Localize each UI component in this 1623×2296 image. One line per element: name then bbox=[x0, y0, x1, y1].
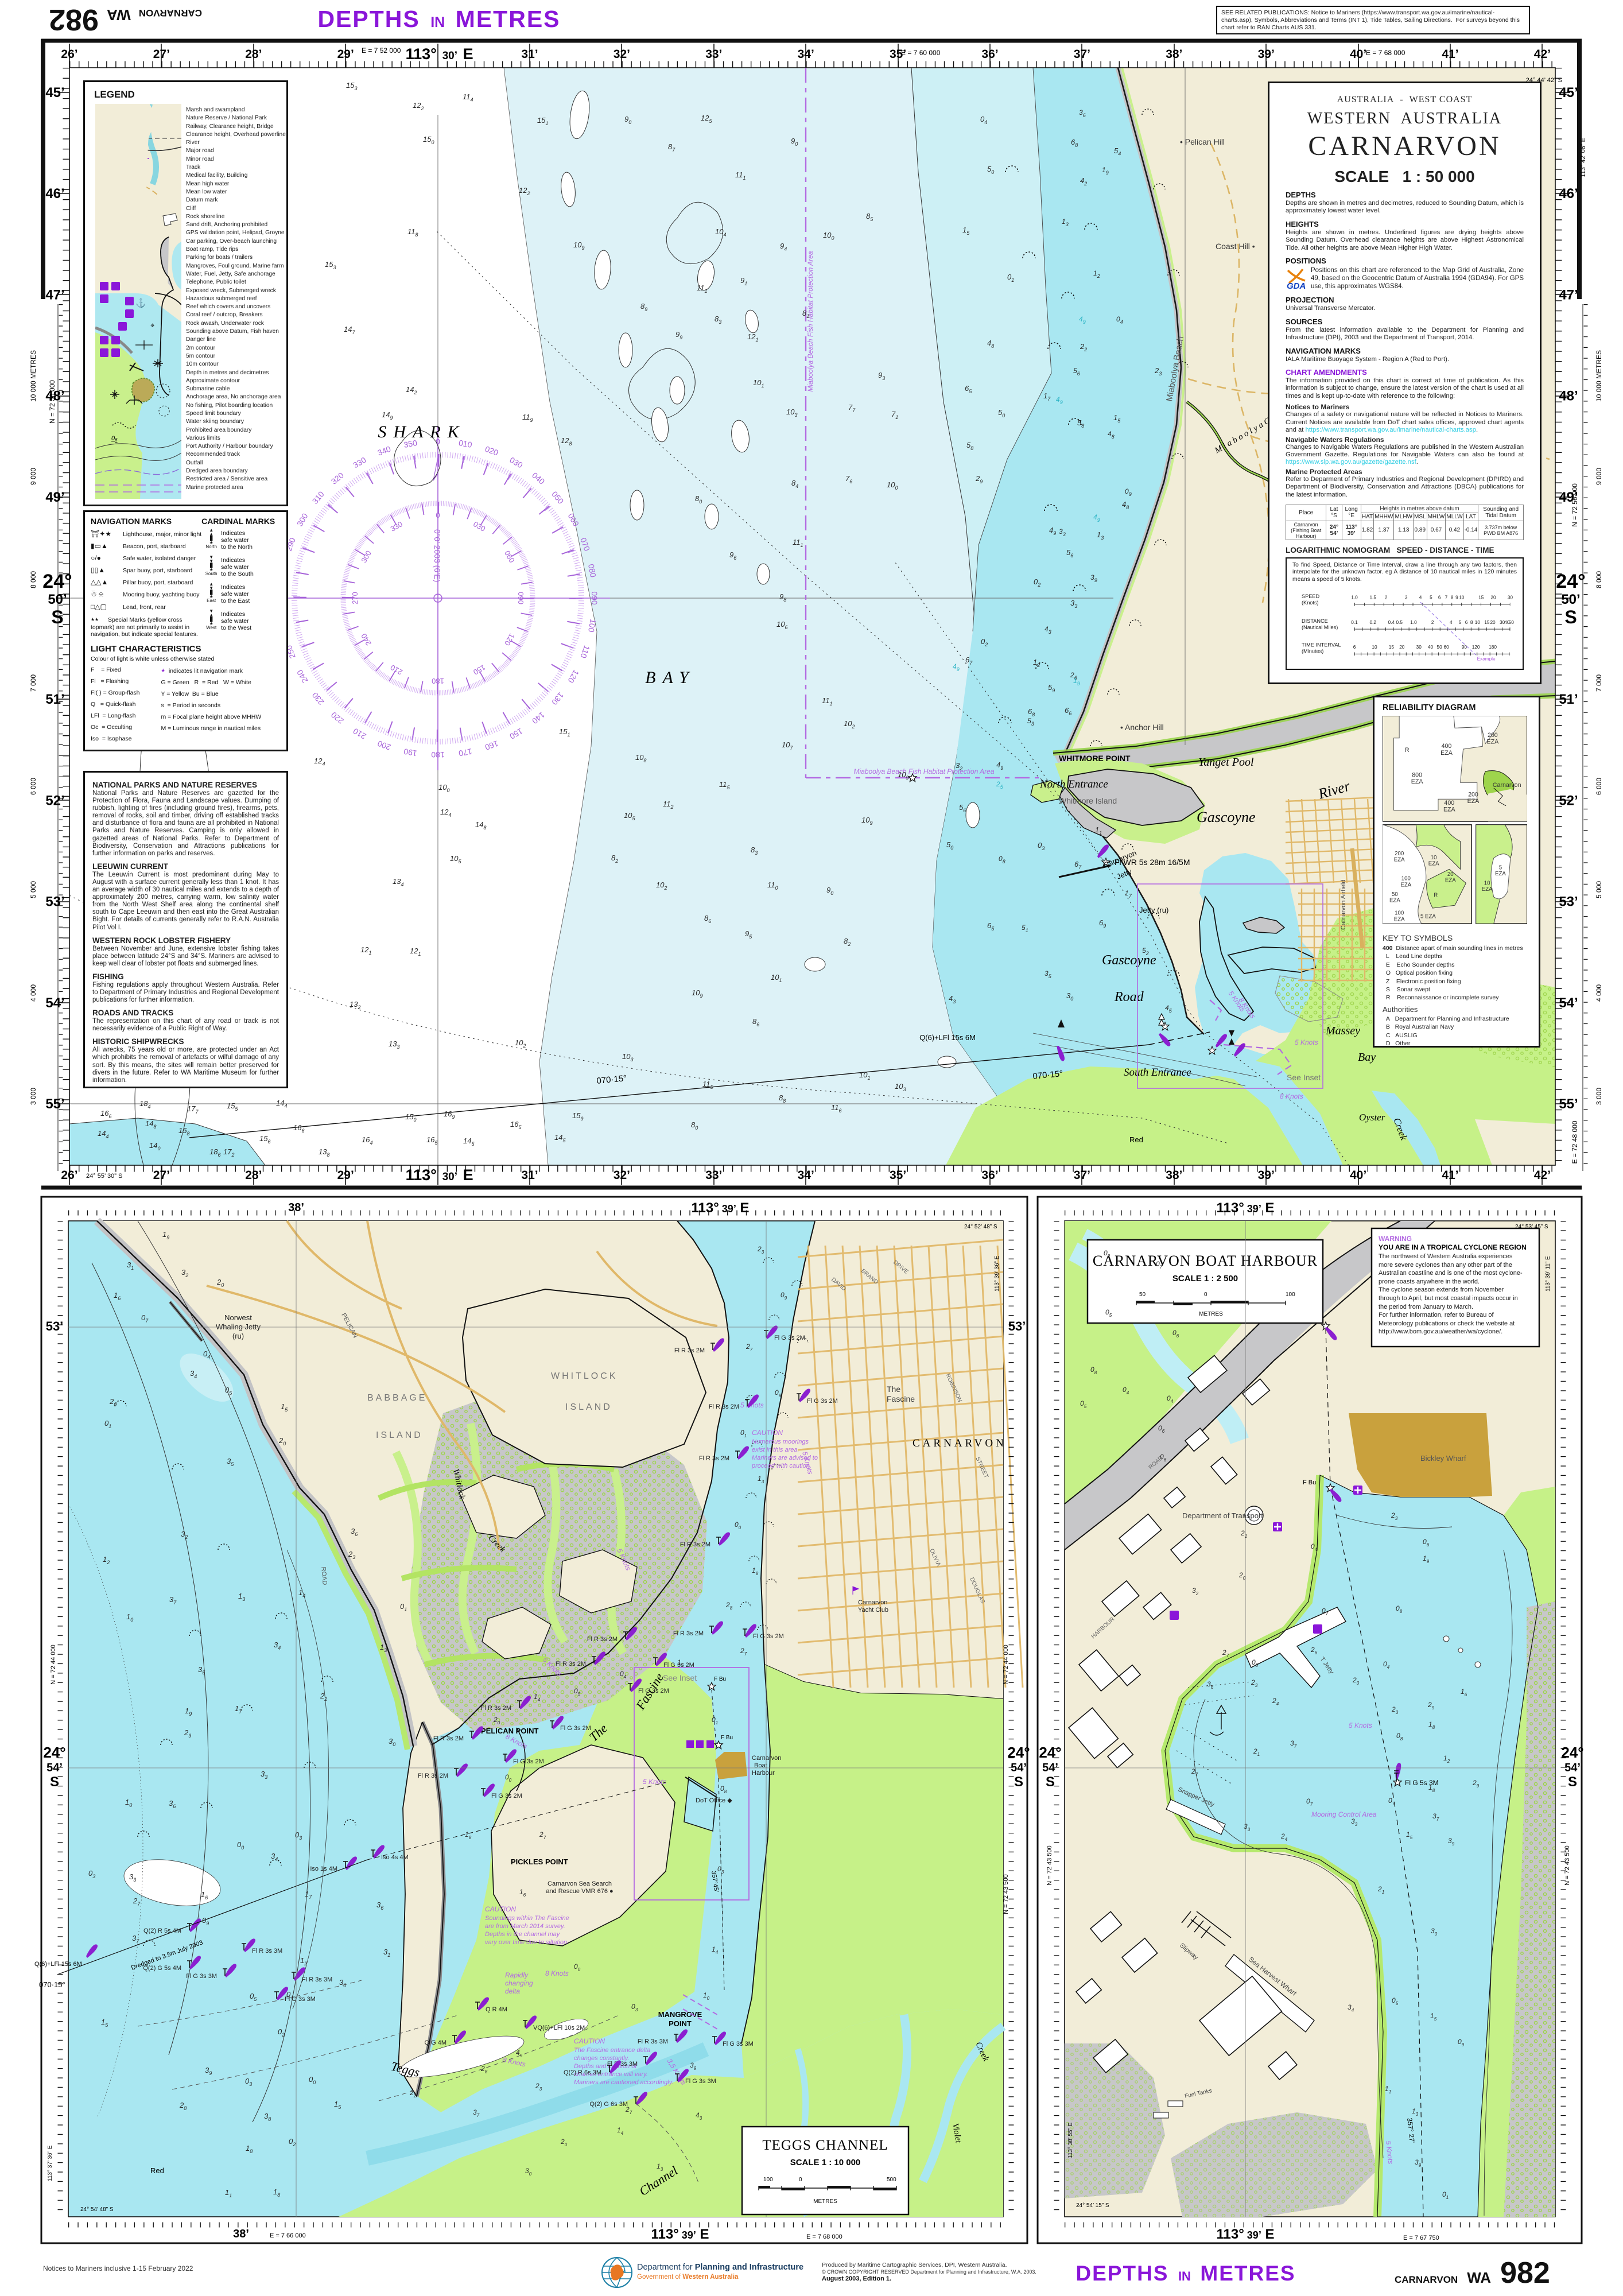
svg-text:2: 2 bbox=[1431, 620, 1434, 625]
svg-text:Carnarvon Sea Search: Carnarvon Sea Search bbox=[548, 1880, 612, 1887]
svg-text:42’: 42’ bbox=[1534, 1169, 1551, 1182]
svg-text:Massey: Massey bbox=[1325, 1025, 1360, 1037]
svg-text:S: S bbox=[51, 607, 63, 627]
svg-text:S: S bbox=[50, 1774, 59, 1790]
svg-text:Fl R 3s 3M: Fl R 3s 3M bbox=[302, 1976, 332, 1983]
svg-text:proceed with caution.: proceed with caution. bbox=[751, 1463, 811, 1469]
svg-text:20: 20 bbox=[1490, 595, 1496, 600]
svg-text:Fl G 3s 3M: Fl G 3s 3M bbox=[685, 2078, 716, 2085]
svg-text:Fl R 3s 2M: Fl R 3s 2M bbox=[699, 1455, 729, 1462]
svg-text:0°0’ 2003 (6’E): 0°0’ 2003 (6’E) bbox=[433, 529, 442, 582]
svg-text:EZA: EZA bbox=[1428, 861, 1439, 867]
svg-text:E = 7 68 000: E = 7 68 000 bbox=[1366, 49, 1405, 57]
svg-text:Whitmore Island: Whitmore Island bbox=[1059, 796, 1117, 805]
svg-text:47’: 47’ bbox=[45, 287, 64, 302]
svg-text:E: E bbox=[463, 45, 473, 63]
svg-text:Gascoyne: Gascoyne bbox=[1197, 809, 1256, 825]
svg-text:10: 10 bbox=[1459, 595, 1465, 600]
svg-text:EZA: EZA bbox=[1445, 878, 1456, 884]
svg-text:Fl G 3s 2M: Fl G 3s 2M bbox=[491, 1793, 522, 1799]
svg-text:EZA: EZA bbox=[1440, 750, 1453, 757]
svg-text:800: 800 bbox=[1412, 772, 1422, 779]
svg-text:50: 50 bbox=[1509, 620, 1515, 625]
svg-text:5 Knots: 5 Knots bbox=[1349, 1721, 1372, 1729]
svg-text:3 000: 3 000 bbox=[1595, 1088, 1603, 1105]
svg-text:39’: 39’ bbox=[1258, 1169, 1275, 1182]
svg-text:PICKLES POINT: PICKLES POINT bbox=[511, 1857, 568, 1866]
svg-text:Norwest: Norwest bbox=[224, 1313, 252, 1322]
svg-text:200: 200 bbox=[1488, 732, 1498, 739]
svg-text:(ru): (ru) bbox=[232, 1332, 244, 1340]
svg-text:47’: 47’ bbox=[1559, 287, 1578, 302]
svg-text:2: 2 bbox=[1385, 595, 1388, 600]
svg-text:delta: delta bbox=[505, 1987, 520, 1995]
svg-text:50: 50 bbox=[1437, 645, 1443, 650]
svg-text:29’: 29’ bbox=[337, 1169, 354, 1182]
svg-text:SCALE 1 : 2 500: SCALE 1 : 2 500 bbox=[1172, 1274, 1238, 1283]
svg-text:4 000: 4 000 bbox=[1595, 984, 1603, 1002]
svg-text:EZA: EZA bbox=[1467, 798, 1480, 805]
svg-text:ISLAND: ISLAND bbox=[565, 1402, 612, 1412]
svg-text:42’: 42’ bbox=[1534, 48, 1551, 61]
svg-text:54’: 54’ bbox=[45, 995, 64, 1011]
svg-text:24°: 24° bbox=[1007, 1744, 1030, 1761]
svg-text:180: 180 bbox=[431, 750, 445, 759]
svg-text:Coast Hill •: Coast Hill • bbox=[1216, 242, 1255, 251]
svg-text:BAY: BAY bbox=[645, 668, 696, 687]
svg-text:Red: Red bbox=[150, 2166, 164, 2175]
svg-text:changing: changing bbox=[505, 1979, 533, 1987]
svg-text:45’: 45’ bbox=[45, 85, 64, 100]
svg-text:38’: 38’ bbox=[1166, 48, 1182, 61]
svg-text:100: 100 bbox=[763, 2177, 773, 2183]
svg-text:EZA: EZA bbox=[1487, 738, 1500, 745]
svg-text:33’: 33’ bbox=[705, 1169, 722, 1182]
svg-text:CARNARVON: CARNARVON bbox=[913, 1437, 1007, 1449]
svg-text:ISLAND: ISLAND bbox=[376, 1430, 423, 1440]
svg-text:113° 38’ 55” E: 113° 38’ 55” E bbox=[1067, 2122, 1074, 2158]
svg-text:Q G 4M: Q G 4M bbox=[424, 2039, 446, 2046]
svg-text:Whaling Jetty: Whaling Jetty bbox=[216, 1322, 261, 1331]
svg-text:113° 39’ 36” E: 113° 39’ 36” E bbox=[994, 1255, 1000, 1291]
svg-text:30’: 30’ bbox=[442, 50, 457, 62]
svg-text:• Anchor Hill: • Anchor Hill bbox=[1120, 723, 1164, 732]
svg-text:METRES: METRES bbox=[1199, 1311, 1223, 1317]
svg-text:113°: 113° bbox=[406, 45, 437, 63]
svg-text:• Pelican Hill: • Pelican Hill bbox=[1180, 137, 1225, 146]
svg-text:Miaboolya Beach Fish Habitat P: Miaboolya Beach Fish Habitat Protection … bbox=[853, 767, 994, 775]
svg-text:8 Knots: 8 Knots bbox=[1280, 1092, 1303, 1100]
svg-text:180: 180 bbox=[1489, 645, 1497, 650]
svg-text:200: 200 bbox=[1468, 791, 1478, 798]
svg-text:0.1: 0.1 bbox=[1351, 620, 1358, 625]
svg-text:5 000: 5 000 bbox=[29, 881, 37, 898]
svg-text:Q(2) R 6s 3M: Q(2) R 6s 3M bbox=[564, 2069, 601, 2076]
svg-text:41’: 41’ bbox=[1442, 1169, 1458, 1182]
svg-text:GDA: GDA bbox=[1287, 281, 1306, 289]
svg-text:(Knots): (Knots) bbox=[1302, 600, 1319, 606]
svg-text:Fl R 3s 2M: Fl R 3s 2M bbox=[433, 1735, 464, 1742]
svg-text:For further information, refer: For further information, refer to Bureau… bbox=[1379, 1312, 1494, 1318]
svg-text:Fl R 3s 2M: Fl R 3s 2M bbox=[673, 1630, 704, 1637]
svg-text:Yacht Club: Yacht Club bbox=[858, 1607, 888, 1614]
svg-text:E = 72 48 000: E = 72 48 000 bbox=[1571, 1120, 1579, 1163]
svg-text:35’: 35’ bbox=[890, 1169, 906, 1182]
svg-text:090: 090 bbox=[517, 592, 525, 604]
svg-text:3 000: 3 000 bbox=[29, 1088, 37, 1105]
svg-text:Department of Transport: Department of Transport bbox=[1182, 1511, 1263, 1520]
svg-text:Carnarvon: Carnarvon bbox=[1493, 782, 1521, 789]
svg-text:53’: 53’ bbox=[1008, 1319, 1026, 1333]
svg-text:CAUTION: CAUTION bbox=[485, 1905, 516, 1913]
svg-text:Q(6)+LFl 15s 6M: Q(6)+LFl 15s 6M bbox=[919, 1033, 976, 1042]
svg-text:8 000: 8 000 bbox=[1595, 571, 1603, 588]
svg-text:4 000: 4 000 bbox=[29, 984, 37, 1002]
svg-text:100: 100 bbox=[1286, 1291, 1295, 1298]
svg-text:32’: 32’ bbox=[614, 48, 630, 61]
svg-text:Fl G 3s 2M: Fl G 3s 2M bbox=[513, 1758, 544, 1765]
svg-text:60: 60 bbox=[1443, 645, 1449, 650]
svg-text:113°: 113° bbox=[406, 1166, 437, 1184]
svg-text:400: 400 bbox=[1442, 743, 1452, 750]
svg-text:4: 4 bbox=[1450, 620, 1453, 625]
svg-text:Rapidly: Rapidly bbox=[505, 1971, 529, 1979]
svg-text:113° 39’ E: 113° 39’ E bbox=[1216, 2227, 1274, 2242]
svg-text:20: 20 bbox=[1447, 871, 1454, 878]
svg-text:Q(2) G 5s 4M: Q(2) G 5s 4M bbox=[143, 1965, 181, 1972]
svg-text:Carnarvon: Carnarvon bbox=[752, 1755, 781, 1762]
svg-text:50: 50 bbox=[1139, 1291, 1146, 1298]
svg-text:Q R 4M: Q R 4M bbox=[486, 2006, 507, 2013]
svg-text:1.0: 1.0 bbox=[1410, 620, 1417, 625]
svg-text:E: E bbox=[463, 1166, 473, 1184]
svg-text:Iso 1s 4M: Iso 1s 4M bbox=[310, 1865, 337, 1872]
svg-text:Road: Road bbox=[1114, 990, 1144, 1004]
svg-text:The: The bbox=[887, 1384, 900, 1394]
svg-text:Fl G 3s 3M: Fl G 3s 3M bbox=[723, 2041, 754, 2047]
svg-text:N = 72 43 500: N = 72 43 500 bbox=[1003, 1874, 1009, 1914]
svg-text:15: 15 bbox=[1478, 595, 1484, 600]
svg-text:N = 72 56 000: N = 72 56 000 bbox=[48, 380, 56, 424]
svg-text:Jetty (ru): Jetty (ru) bbox=[1139, 906, 1168, 914]
svg-text:49’: 49’ bbox=[45, 490, 64, 505]
svg-text:VQ(6)+LFl 10s 2M: VQ(6)+LFl 10s 2M bbox=[533, 2024, 585, 2031]
svg-text:7 000: 7 000 bbox=[1595, 674, 1603, 692]
svg-text:36’: 36’ bbox=[981, 1169, 998, 1182]
svg-text:24°: 24° bbox=[1556, 571, 1585, 592]
svg-text:F Bu: F Bu bbox=[721, 1735, 733, 1741]
svg-text:EZA: EZA bbox=[1411, 778, 1424, 785]
svg-text:1.0: 1.0 bbox=[1351, 595, 1358, 600]
svg-text:Meteorology publications or ch: Meteorology publications or check the we… bbox=[1379, 1320, 1515, 1327]
svg-text:E = 7 68 000: E = 7 68 000 bbox=[806, 2233, 842, 2240]
svg-text:50’: 50’ bbox=[48, 592, 67, 607]
svg-text:29’: 29’ bbox=[337, 48, 354, 61]
svg-text:41’: 41’ bbox=[1442, 48, 1458, 61]
svg-text:5: 5 bbox=[1499, 864, 1502, 871]
svg-text:45’: 45’ bbox=[1559, 85, 1578, 100]
svg-text:10 000 METRES: 10 000 METRES bbox=[29, 350, 37, 402]
svg-text:Fl G 5s 3M: Fl G 5s 3M bbox=[1405, 1779, 1439, 1787]
svg-text:113° 37’ 36” E: 113° 37’ 36” E bbox=[47, 2145, 53, 2181]
svg-text:S: S bbox=[1046, 1774, 1055, 1790]
svg-text:50: 50 bbox=[1392, 891, 1398, 898]
svg-text:30: 30 bbox=[1416, 645, 1422, 650]
svg-text:E = 7 52 000: E = 7 52 000 bbox=[362, 46, 401, 55]
svg-text:34’: 34’ bbox=[798, 48, 814, 61]
svg-text:0: 0 bbox=[436, 511, 440, 519]
svg-text:24° 55’ 30” S: 24° 55’ 30” S bbox=[86, 1173, 122, 1180]
svg-text:6: 6 bbox=[1353, 645, 1356, 650]
svg-text:180: 180 bbox=[432, 677, 444, 685]
svg-text:15: 15 bbox=[1484, 620, 1490, 625]
svg-text:Fl R 3s 2M: Fl R 3s 2M bbox=[587, 1636, 618, 1643]
svg-text:9 000: 9 000 bbox=[1595, 468, 1603, 485]
svg-text:28’: 28’ bbox=[245, 48, 262, 61]
svg-text:SCALE 1 : 10 000: SCALE 1 : 10 000 bbox=[790, 2158, 861, 2167]
svg-text:5: 5 bbox=[1430, 595, 1432, 600]
svg-text:Example: Example bbox=[1477, 657, 1496, 662]
svg-text:400: 400 bbox=[1444, 800, 1454, 806]
svg-text:YOU ARE IN A TROPICAL CYCLONE: YOU ARE IN A TROPICAL CYCLONE REGION bbox=[1379, 1243, 1527, 1251]
svg-text:The Fascine entrance delta: The Fascine entrance delta bbox=[574, 2047, 650, 2054]
svg-text:10: 10 bbox=[1484, 880, 1490, 886]
svg-text:Fl R 3s 2M: Fl R 3s 2M bbox=[418, 1773, 448, 1779]
svg-text:500: 500 bbox=[887, 2177, 896, 2183]
svg-text:MANGROVE: MANGROVE bbox=[658, 2010, 702, 2019]
svg-text:Australian coastline and is on: Australian coastline and is one of the m… bbox=[1379, 1270, 1523, 1277]
svg-text:8: 8 bbox=[1451, 595, 1454, 600]
svg-text:54’: 54’ bbox=[1042, 1762, 1058, 1774]
svg-text:10: 10 bbox=[1431, 855, 1437, 861]
svg-text:10 000 METRES: 10 000 METRES bbox=[1595, 350, 1603, 402]
svg-text:N = 72 43 500: N = 72 43 500 bbox=[1046, 1845, 1053, 1885]
svg-text:090: 090 bbox=[590, 591, 599, 605]
svg-text:10: 10 bbox=[1372, 645, 1377, 650]
svg-text:24°: 24° bbox=[43, 1744, 65, 1761]
svg-text:46’: 46’ bbox=[1559, 186, 1578, 201]
svg-text:⌖: ⌖ bbox=[150, 321, 155, 329]
svg-text:EZA: EZA bbox=[1389, 897, 1400, 903]
svg-text:Soundings within The Fascine: Soundings within The Fascine bbox=[485, 1915, 569, 1922]
svg-text:55’: 55’ bbox=[1559, 1096, 1578, 1112]
svg-text:North Entrance: North Entrance bbox=[1039, 778, 1108, 790]
svg-text:54’: 54’ bbox=[1559, 995, 1578, 1011]
svg-text:54’: 54’ bbox=[1011, 1762, 1027, 1774]
svg-text:Fl R 3s 3M: Fl R 3s 3M bbox=[252, 1948, 282, 1954]
svg-text:9: 9 bbox=[1455, 595, 1458, 600]
svg-text:E = 7 60 000: E = 7 60 000 bbox=[901, 49, 941, 57]
svg-text:DISTANCE: DISTANCE bbox=[1302, 618, 1328, 624]
svg-text:5 Knots: 5 Knots bbox=[643, 1778, 666, 1786]
svg-text:WARNING: WARNING bbox=[1379, 1235, 1412, 1243]
svg-text:Red: Red bbox=[1129, 1135, 1143, 1144]
svg-text:32’: 32’ bbox=[614, 1169, 630, 1182]
svg-text:CARNARVON BOAT HARBOUR: CARNARVON BOAT HARBOUR bbox=[1093, 1252, 1318, 1269]
svg-text:N = 72 56 000: N = 72 56 000 bbox=[1571, 483, 1579, 527]
svg-text:200: 200 bbox=[1395, 851, 1404, 857]
svg-text:38’: 38’ bbox=[233, 2228, 249, 2240]
svg-text:34’: 34’ bbox=[798, 1169, 814, 1182]
svg-text:BABBAGE: BABBAGE bbox=[367, 1393, 427, 1403]
svg-text:The cyclone season extends fro: The cyclone season extends from November bbox=[1379, 1286, 1504, 1293]
svg-text:Fascine: Fascine bbox=[887, 1394, 915, 1403]
svg-text:Fl G 3s 2M: Fl G 3s 2M bbox=[560, 1725, 591, 1732]
svg-text:27’: 27’ bbox=[153, 1169, 170, 1182]
svg-text:070·15°: 070·15° bbox=[39, 1980, 65, 1989]
svg-text:SPEED: SPEED bbox=[1302, 594, 1320, 599]
svg-text:24° 53’ 45” S: 24° 53’ 45” S bbox=[1515, 1224, 1548, 1230]
svg-text:Fl R 3s 2M: Fl R 3s 2M bbox=[556, 1661, 586, 1667]
svg-text:51’: 51’ bbox=[45, 692, 64, 707]
svg-text:Fl R 3s 2M: Fl R 3s 2M bbox=[680, 1541, 710, 1548]
svg-text:prone coasts anywhere in the w: prone coasts anywhere in the world. bbox=[1379, 1278, 1480, 1285]
svg-text:7 000: 7 000 bbox=[29, 674, 37, 692]
svg-text:39’: 39’ bbox=[1258, 48, 1275, 61]
svg-text:6: 6 bbox=[1465, 620, 1468, 625]
svg-text:24°: 24° bbox=[42, 571, 72, 592]
svg-text:52’: 52’ bbox=[45, 793, 64, 808]
svg-text:8 Knots: 8 Knots bbox=[545, 1969, 569, 1977]
svg-text:5: 5 bbox=[1459, 620, 1462, 625]
svg-text:are from March 2014 survey.: are from March 2014 survey. bbox=[485, 1923, 565, 1930]
svg-text:20: 20 bbox=[1399, 645, 1405, 650]
svg-text:113° 42’ 06” E: 113° 42’ 06” E bbox=[1580, 138, 1587, 177]
svg-text:5 000: 5 000 bbox=[1595, 881, 1603, 898]
svg-text:South Entrance: South Entrance bbox=[1124, 1066, 1191, 1079]
svg-text:5 Knots: 5 Knots bbox=[1295, 1038, 1318, 1046]
svg-text:31’: 31’ bbox=[521, 1169, 538, 1182]
svg-text:Q(2) G 6s 3M: Q(2) G 6s 3M bbox=[589, 2101, 628, 2108]
svg-text:0.5: 0.5 bbox=[1396, 620, 1403, 625]
svg-text:S: S bbox=[1564, 607, 1577, 627]
svg-text:CAUTION: CAUTION bbox=[752, 1429, 783, 1437]
svg-text:53’: 53’ bbox=[1559, 894, 1578, 910]
svg-text:10: 10 bbox=[1475, 620, 1481, 625]
svg-text:26’: 26’ bbox=[61, 1169, 77, 1182]
svg-text:0: 0 bbox=[1204, 1291, 1207, 1298]
svg-text:See Inset: See Inset bbox=[663, 1673, 697, 1682]
svg-text:100: 100 bbox=[1395, 910, 1404, 917]
svg-text:7: 7 bbox=[1445, 595, 1448, 600]
svg-text:Numerous moorings: Numerous moorings bbox=[752, 1438, 809, 1445]
svg-text:4: 4 bbox=[1419, 595, 1422, 600]
svg-text:exist in this area.: exist in this area. bbox=[752, 1446, 799, 1453]
svg-text:40’: 40’ bbox=[1350, 1169, 1366, 1182]
svg-text:30: 30 bbox=[1508, 595, 1513, 600]
svg-text:38’: 38’ bbox=[288, 1201, 304, 1214]
svg-text:N = 72 44 000: N = 72 44 000 bbox=[1003, 1645, 1009, 1684]
svg-text:Carnarvon Airfield: Carnarvon Airfield bbox=[1340, 880, 1347, 930]
svg-text:53’: 53’ bbox=[46, 1319, 64, 1333]
svg-text:Gascoyne: Gascoyne bbox=[1102, 953, 1156, 968]
svg-text:F Bu: F Bu bbox=[1303, 1479, 1316, 1486]
svg-text:the period from January to Mar: the period from January to March. bbox=[1379, 1304, 1473, 1310]
svg-text:E = 7 66 000: E = 7 66 000 bbox=[270, 2232, 306, 2239]
svg-text:Fl R 3s 2M: Fl R 3s 2M bbox=[709, 1403, 739, 1410]
svg-text:EZA: EZA bbox=[1394, 916, 1405, 922]
svg-text:N = 72 43 500: N = 72 43 500 bbox=[1564, 1845, 1571, 1885]
svg-text:Q(6)+LFl 15s 6M: Q(6)+LFl 15s 6M bbox=[34, 1961, 82, 1968]
svg-text:The northwest of Western Austr: The northwest of Western Australia exper… bbox=[1379, 1253, 1513, 1260]
svg-text:Yanget Pool: Yanget Pool bbox=[1198, 756, 1254, 769]
svg-text:100: 100 bbox=[1401, 876, 1411, 882]
svg-text:113° 39’ E: 113° 39’ E bbox=[651, 2227, 709, 2242]
svg-text:Fl G 3s 2M: Fl G 3s 2M bbox=[638, 1688, 669, 1694]
svg-text:54’: 54’ bbox=[46, 1762, 63, 1774]
svg-text:6 000: 6 000 bbox=[29, 778, 37, 795]
svg-text:Mariners are cautioned accordi: Mariners are cautioned accordingly. bbox=[574, 2079, 673, 2086]
svg-text:TIME INTERVAL: TIME INTERVAL bbox=[1302, 642, 1341, 648]
svg-text:Fl G 3s 2M: Fl G 3s 2M bbox=[774, 1335, 805, 1341]
svg-text:40: 40 bbox=[1428, 645, 1434, 650]
svg-text:E = 7 67 750: E = 7 67 750 bbox=[1403, 2235, 1439, 2241]
svg-text:40’: 40’ bbox=[1350, 48, 1366, 61]
svg-text:Bickley Wharf: Bickley Wharf bbox=[1420, 1454, 1466, 1463]
svg-text:0.2: 0.2 bbox=[1369, 620, 1376, 625]
svg-text:Miaboolya Beach Fish Habitat P: Miaboolya Beach Fish Habitat Protection … bbox=[806, 251, 814, 391]
svg-text:Fl R 3s 2M: Fl R 3s 2M bbox=[674, 1347, 705, 1354]
svg-text:through to April, but most coa: through to April, but most coastal impac… bbox=[1379, 1295, 1518, 1302]
svg-text:27’: 27’ bbox=[153, 48, 170, 61]
svg-text:8: 8 bbox=[1470, 620, 1473, 625]
svg-text:270: 270 bbox=[351, 592, 359, 604]
svg-text:28’: 28’ bbox=[245, 1169, 262, 1182]
svg-text:EZA: EZA bbox=[1482, 886, 1493, 893]
svg-text:EZA: EZA bbox=[1394, 857, 1405, 863]
svg-text:15: 15 bbox=[1389, 645, 1395, 650]
svg-text:6: 6 bbox=[1438, 595, 1441, 600]
svg-text:113° 39’ E: 113° 39’ E bbox=[691, 1200, 749, 1216]
svg-text:24° 52’ 48” S: 24° 52’ 48” S bbox=[964, 1224, 997, 1230]
svg-text:R: R bbox=[1434, 893, 1438, 899]
svg-text:113° 39’ 11” E: 113° 39’ 11” E bbox=[1545, 1256, 1551, 1291]
svg-text:113° 39’ E: 113° 39’ E bbox=[1216, 1200, 1274, 1216]
svg-text:90: 90 bbox=[1462, 645, 1467, 650]
svg-text:Bay: Bay bbox=[1358, 1051, 1376, 1064]
svg-text:METRES: METRES bbox=[813, 2198, 837, 2205]
svg-text:24° 54’ 15” S: 24° 54’ 15” S bbox=[1076, 2202, 1109, 2209]
svg-text:N = 72 44 000: N = 72 44 000 bbox=[50, 1645, 57, 1684]
svg-text:Oyster: Oyster bbox=[1359, 1112, 1385, 1123]
svg-text:Fl R 3s 2M: Fl R 3s 2M bbox=[481, 1705, 511, 1712]
svg-text:20: 20 bbox=[1490, 620, 1496, 625]
svg-text:120: 120 bbox=[1472, 645, 1480, 650]
svg-text:EZA: EZA bbox=[1400, 882, 1411, 888]
svg-text:TEGGS CHANNEL: TEGGS CHANNEL bbox=[762, 2138, 888, 2153]
svg-text:DoT Office ◆: DoT Office ◆ bbox=[696, 1797, 732, 1804]
svg-text:26’: 26’ bbox=[61, 48, 77, 61]
svg-text:24°: 24° bbox=[1561, 1744, 1583, 1761]
svg-text:http://www.bom.gov.au/weather/: http://www.bom.gov.au/weather/wa/cyclone… bbox=[1379, 1328, 1502, 1335]
svg-text:1.5: 1.5 bbox=[1369, 595, 1376, 600]
svg-text:5 EZA: 5 EZA bbox=[1420, 914, 1436, 920]
svg-text:48’: 48’ bbox=[1559, 389, 1578, 404]
svg-text:52’: 52’ bbox=[1559, 793, 1578, 808]
svg-text:36’: 36’ bbox=[981, 48, 998, 61]
svg-text:Harbour: Harbour bbox=[752, 1770, 775, 1777]
svg-text:46’: 46’ bbox=[45, 186, 64, 201]
svg-text:more severe cyclones than any: more severe cyclones than any other part… bbox=[1379, 1262, 1512, 1269]
svg-text:WHITLOCK: WHITLOCK bbox=[551, 1371, 618, 1381]
svg-text:0.4: 0.4 bbox=[1388, 620, 1395, 625]
svg-text:53’: 53’ bbox=[45, 894, 64, 910]
svg-text:37’: 37’ bbox=[1074, 48, 1090, 61]
svg-text:24° 54’ 48” S: 24° 54’ 48” S bbox=[80, 2206, 114, 2213]
svg-text:8 000: 8 000 bbox=[29, 571, 37, 588]
svg-text:Fl G 3s 3M: Fl G 3s 3M bbox=[186, 1973, 217, 1980]
svg-text:Fl G 3s 2M: Fl G 3s 2M bbox=[807, 1398, 838, 1405]
